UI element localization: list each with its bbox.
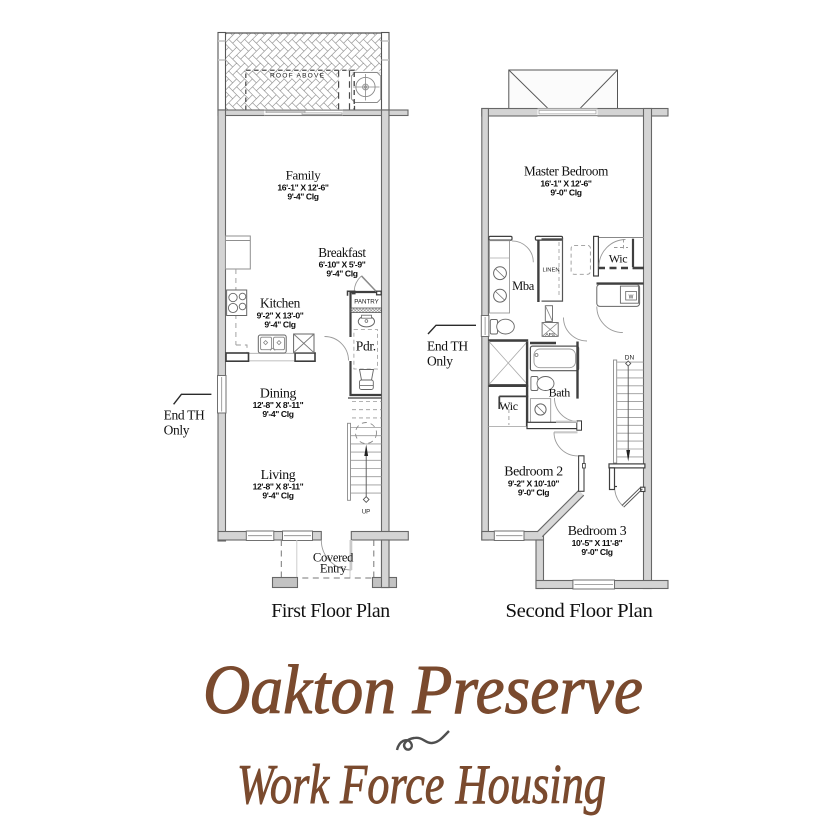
svg-text:Oakton Preserve: Oakton Preserve (203, 652, 643, 729)
svg-text:Bath: Bath (549, 386, 571, 400)
svg-text:9'-4" Clg: 9'-4" Clg (262, 409, 293, 419)
svg-text:Mba: Mba (512, 279, 535, 293)
svg-text:DN: DN (625, 355, 635, 362)
svg-text:First Floor Plan: First Floor Plan (271, 600, 390, 622)
svg-text:Work Force Housing: Work Force Housing (237, 754, 606, 816)
svg-text:Master Bedroom: Master Bedroom (524, 164, 609, 179)
svg-text:Only: Only (164, 423, 190, 438)
svg-text:Dining: Dining (260, 386, 297, 401)
svg-text:9'-0" Clg: 9'-0" Clg (581, 547, 612, 557)
svg-text:Wic: Wic (609, 252, 627, 266)
svg-text:Bedroom 2: Bedroom 2 (504, 464, 563, 479)
svg-text:Wic: Wic (499, 399, 517, 413)
svg-text:9'-4" Clg: 9'-4" Clg (326, 269, 357, 279)
svg-text:Pdr.: Pdr. (356, 339, 376, 354)
svg-text:End TH: End TH (164, 408, 205, 423)
svg-text:UP: UP (362, 510, 370, 516)
svg-text:9'-0" Clg: 9'-0" Clg (550, 188, 581, 198)
svg-text:APS: APS (545, 332, 555, 338)
svg-text:9'-4" Clg: 9'-4" Clg (287, 192, 318, 202)
svg-text:Family: Family (286, 168, 322, 183)
svg-text:Bedroom 3: Bedroom 3 (568, 523, 627, 538)
svg-text:LINEN: LINEN (542, 268, 559, 274)
svg-text:Entry: Entry (320, 562, 347, 576)
svg-text:End TH: End TH (427, 339, 468, 354)
svg-text:Breakfast: Breakfast (318, 245, 366, 260)
svg-text:Only: Only (427, 354, 453, 369)
svg-text:9'-4" Clg: 9'-4" Clg (262, 491, 293, 501)
svg-text:ROOF ABOVE: ROOF ABOVE (270, 72, 325, 79)
svg-text:9'-4" Clg: 9'-4" Clg (264, 320, 295, 330)
svg-text:Second Floor Plan: Second Floor Plan (506, 600, 653, 622)
svg-text:PANTRY: PANTRY (354, 299, 379, 306)
svg-text:Living: Living (261, 467, 296, 482)
svg-text:W: W (629, 295, 634, 301)
svg-text:9'-0" Clg: 9'-0" Clg (518, 488, 549, 498)
svg-text:Kitchen: Kitchen (260, 296, 301, 311)
